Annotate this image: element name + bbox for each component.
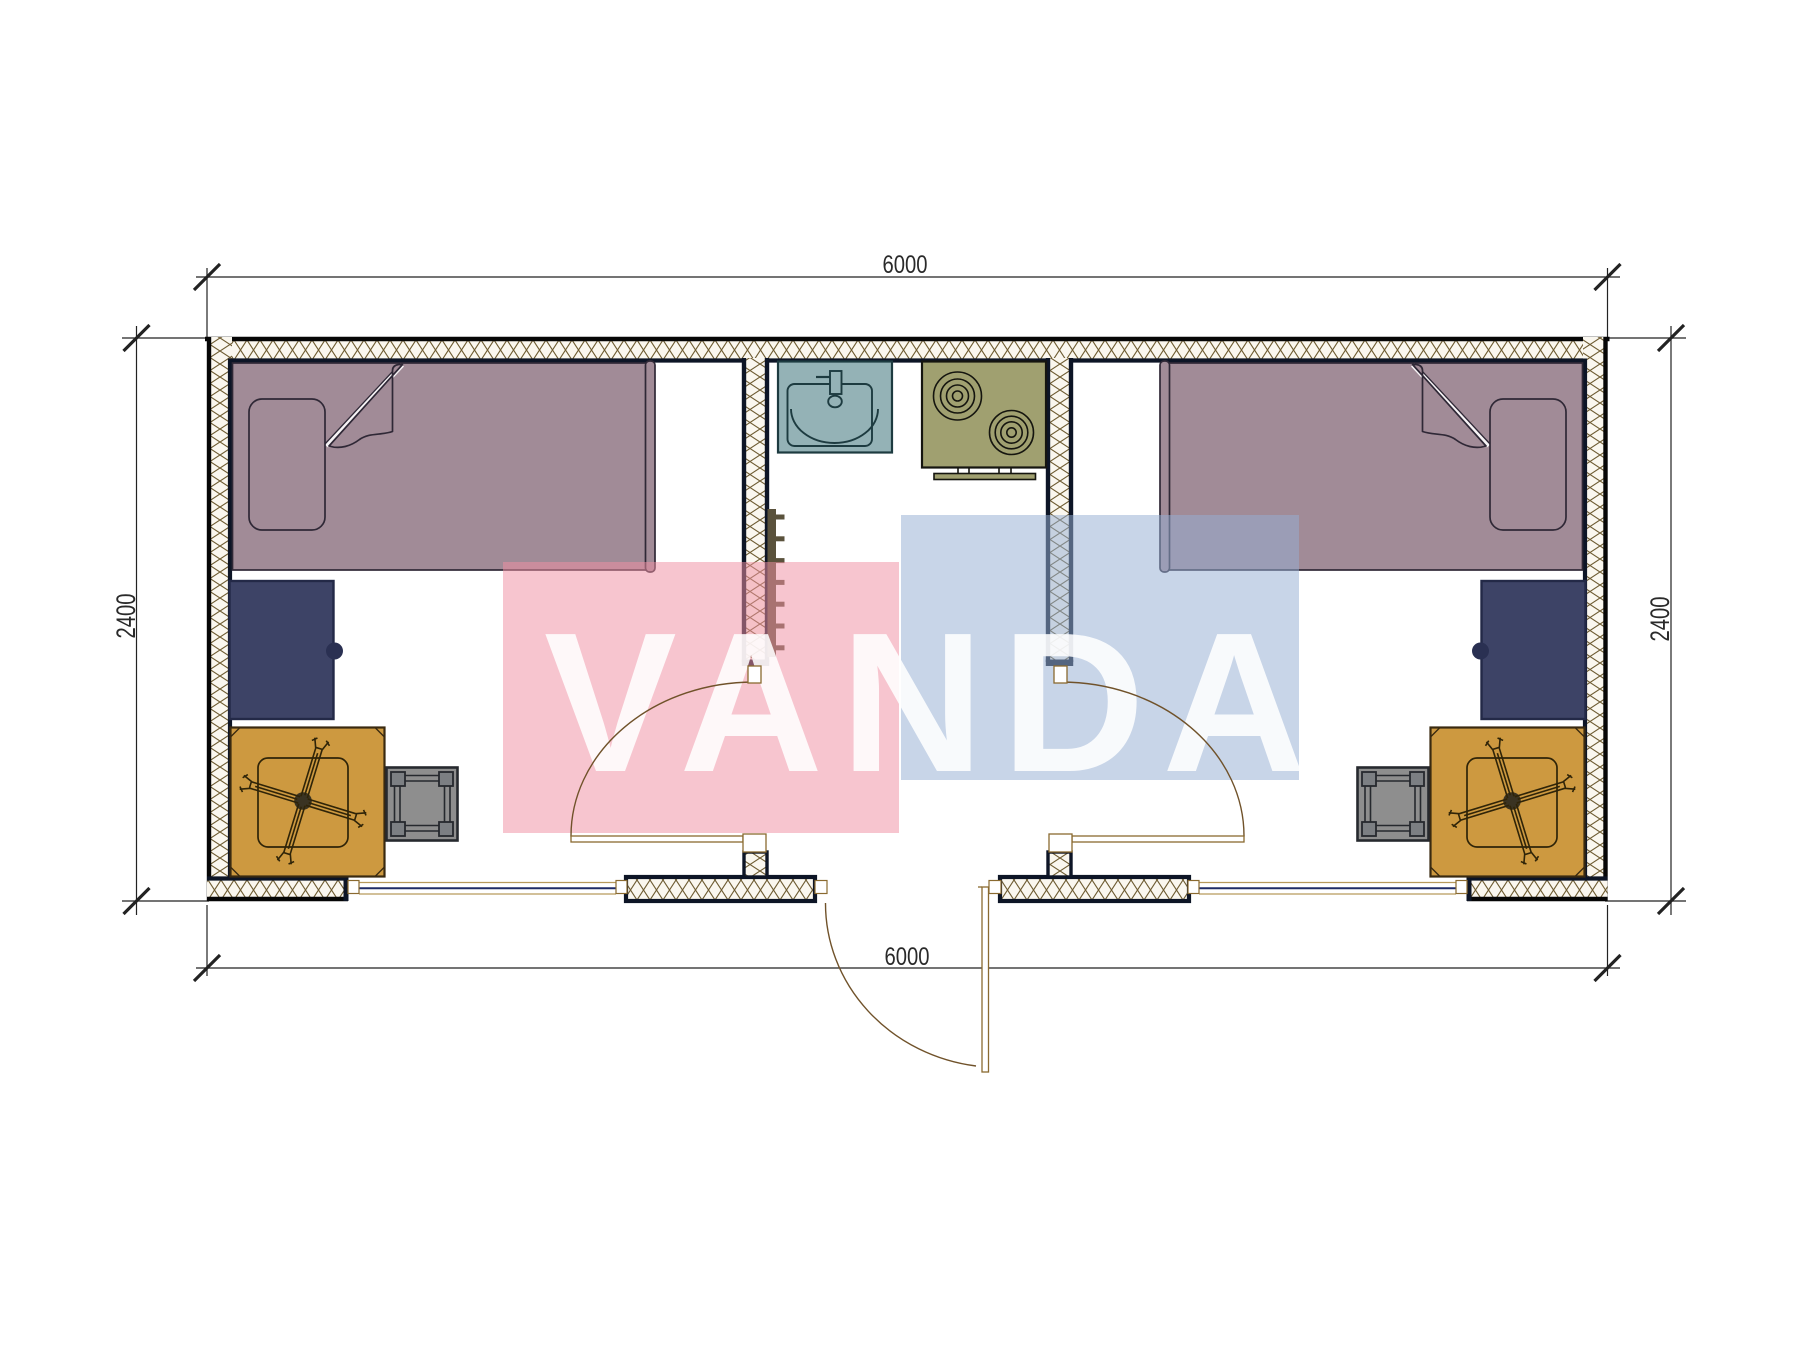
svg-text:6000: 6000	[885, 943, 930, 971]
svg-text:2400: 2400	[111, 594, 141, 639]
svg-text:2400: 2400	[1645, 597, 1675, 642]
svg-text:VANDA: VANDA	[544, 592, 1306, 814]
svg-text:6000: 6000	[883, 251, 928, 279]
